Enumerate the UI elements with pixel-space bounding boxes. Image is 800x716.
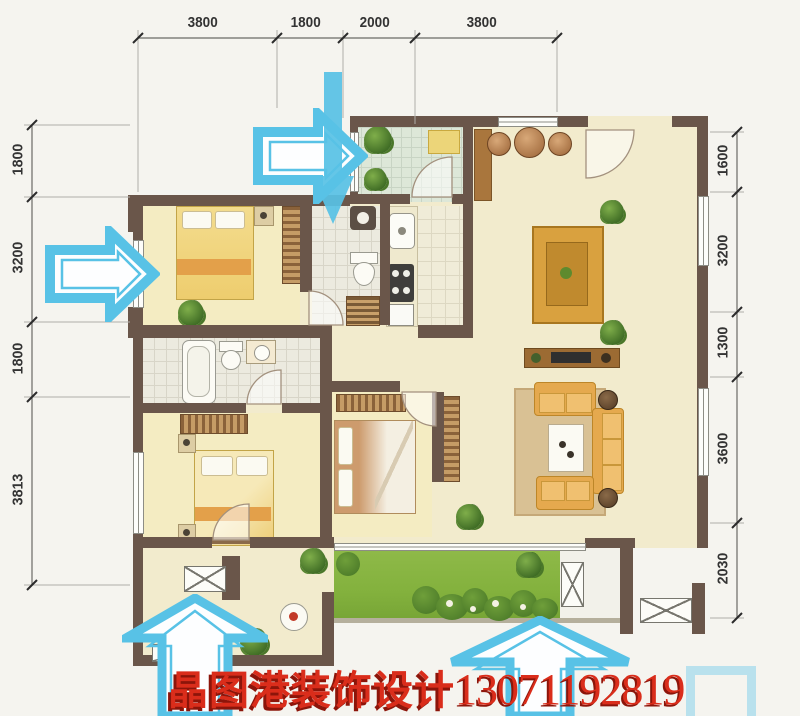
window xyxy=(698,388,709,476)
decor xyxy=(567,451,574,458)
wall xyxy=(320,381,400,392)
sofa-loveseat-bottom xyxy=(536,476,594,510)
watermark-text: 晶图港装饰设计13071192819 xyxy=(168,658,684,716)
dim-left-2: 3200 xyxy=(10,229,27,286)
window xyxy=(698,196,709,266)
wall xyxy=(128,325,332,338)
decor xyxy=(601,353,611,363)
dim-top-2: 1800 xyxy=(291,14,321,31)
lamp-icon xyxy=(183,529,190,536)
dim-right-5: 2030 xyxy=(715,540,732,597)
decor xyxy=(559,441,566,448)
dim-right-1: 1600 xyxy=(715,132,732,189)
basket-decor xyxy=(514,127,545,158)
decor xyxy=(289,612,298,621)
dim-top-3: 2000 xyxy=(360,14,390,31)
wall xyxy=(697,116,708,548)
pillow xyxy=(338,469,353,507)
pillow xyxy=(182,211,212,229)
dining-floor xyxy=(463,116,708,216)
garden-shrub xyxy=(336,552,360,576)
dining-table xyxy=(532,226,604,324)
cushion xyxy=(539,393,565,413)
dim-left-4: 3813 xyxy=(10,461,27,518)
shower-mat xyxy=(346,296,380,326)
nightstand xyxy=(254,206,274,226)
dim-right-2: 3200 xyxy=(715,222,732,279)
wardrobe-bedroom3 xyxy=(336,394,406,412)
burner xyxy=(392,287,399,294)
dining-plant xyxy=(600,200,624,224)
dim-top-4: 3800 xyxy=(467,14,497,31)
wall xyxy=(322,592,334,666)
console-plant xyxy=(531,353,541,363)
vanity xyxy=(246,340,276,364)
cushion xyxy=(602,413,622,439)
hall-plant xyxy=(456,504,482,530)
bathtub xyxy=(182,340,216,404)
blanket-band xyxy=(177,259,251,275)
arrow-down-icon xyxy=(312,72,356,232)
bed-master xyxy=(176,206,254,300)
centerpiece xyxy=(560,267,572,279)
garden-plant xyxy=(516,552,542,578)
tub-inner xyxy=(187,346,210,397)
garden-column-window xyxy=(561,562,584,607)
lamp-icon xyxy=(183,439,190,446)
bay-window xyxy=(640,598,692,623)
fridge xyxy=(388,304,414,326)
cushion xyxy=(566,393,592,413)
wall xyxy=(463,126,473,338)
cushion xyxy=(602,465,622,491)
balcony-plant xyxy=(364,126,392,154)
burner xyxy=(403,270,410,277)
burner xyxy=(403,287,410,294)
dim-right-3: 1300 xyxy=(715,314,732,371)
potted-plant xyxy=(178,300,204,326)
arrow-right-icon xyxy=(44,226,160,322)
nightstand xyxy=(178,434,196,453)
basket-decor xyxy=(487,132,511,156)
study-table xyxy=(184,566,226,592)
water-heater xyxy=(428,130,460,154)
garden-flower xyxy=(492,600,499,607)
wall xyxy=(380,204,390,325)
dim-left-1: 1800 xyxy=(10,131,27,188)
drain xyxy=(398,227,406,235)
coffee-table xyxy=(548,424,584,472)
wall xyxy=(432,392,444,482)
lamp-icon xyxy=(260,212,267,219)
wardrobe-bedroom2 xyxy=(180,414,248,434)
wall xyxy=(300,195,312,292)
dim-top-1: 3800 xyxy=(188,14,218,31)
cushion xyxy=(566,481,590,501)
watermark-phone: 13071192819 xyxy=(455,665,684,714)
sofa-loveseat-top xyxy=(534,382,596,416)
garden-flower xyxy=(470,606,476,612)
pillow xyxy=(201,456,233,476)
sheet-fold xyxy=(375,421,413,511)
floor-plan-image: 3800 1800 2000 3800 1800 3200 1800 3813 … xyxy=(0,0,800,716)
study-plant xyxy=(300,548,326,574)
pillow xyxy=(236,456,268,476)
window xyxy=(133,452,144,534)
dim-left-3: 1800 xyxy=(10,330,27,387)
cushion xyxy=(602,439,622,465)
stove xyxy=(388,264,414,302)
sofa-long-right xyxy=(592,408,624,494)
dim-right-4: 3600 xyxy=(715,420,732,477)
garden-flower xyxy=(446,600,453,607)
garden-flower xyxy=(520,604,526,610)
blanket-band xyxy=(195,507,271,521)
tea-table xyxy=(280,603,308,631)
wall xyxy=(320,338,332,548)
pillow xyxy=(338,427,353,465)
basin xyxy=(357,212,369,224)
basket-decor xyxy=(548,132,572,156)
wall xyxy=(133,403,246,413)
tv-console xyxy=(524,348,620,368)
watermark-brand: 晶图港装饰设计 xyxy=(168,669,455,713)
garden-sliding-door xyxy=(334,543,586,551)
tv xyxy=(551,352,591,363)
toilet-bowl xyxy=(221,350,241,370)
bed-third xyxy=(334,420,416,514)
kitchen-sink xyxy=(389,213,415,249)
cushion xyxy=(541,481,565,501)
dining-plant xyxy=(600,320,625,345)
watermark-square xyxy=(686,666,756,716)
wall xyxy=(282,403,320,413)
wall xyxy=(692,583,705,634)
burner xyxy=(392,270,399,277)
side-table xyxy=(598,390,618,410)
bed-second xyxy=(194,450,274,546)
wash-basin xyxy=(254,345,270,361)
pillow xyxy=(215,211,245,229)
window xyxy=(498,117,558,127)
side-table xyxy=(598,488,618,508)
wall xyxy=(133,537,212,548)
